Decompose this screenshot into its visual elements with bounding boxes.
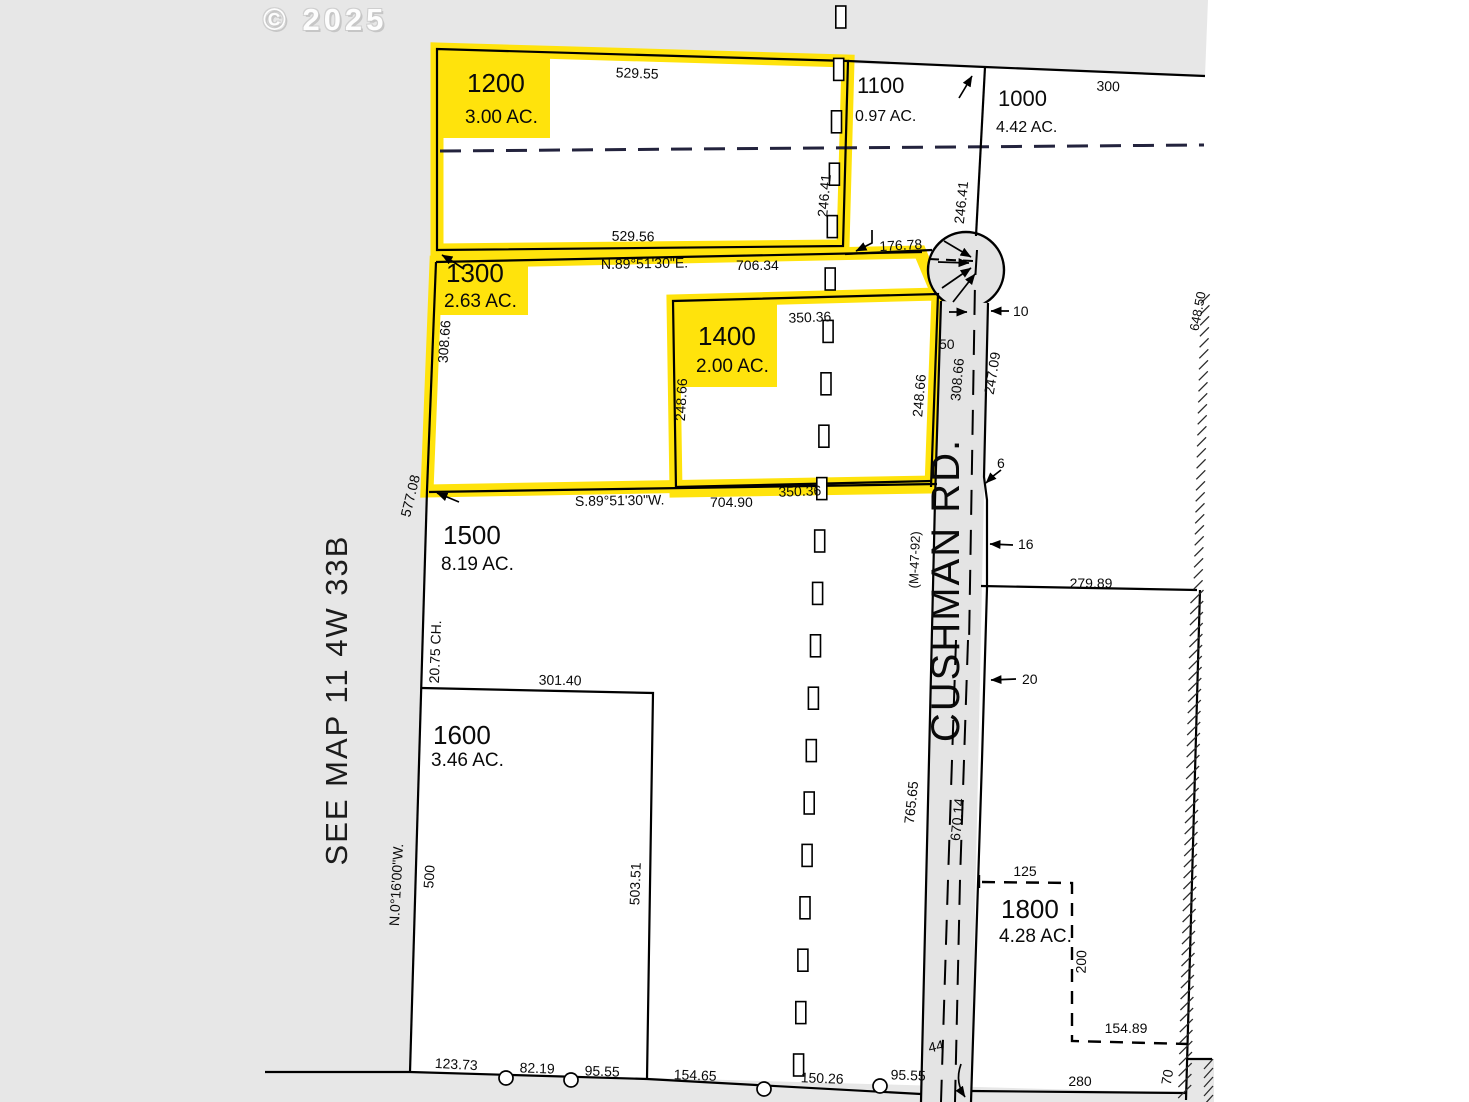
dim-arrow-6	[986, 470, 1001, 483]
survey-circle	[873, 1079, 887, 1093]
hatch-tick	[1196, 470, 1205, 479]
dim-280: 280	[1068, 1073, 1092, 1089]
hatch-tick	[1186, 755, 1199, 768]
plat-map-page: 1200 3.00 AC. 1100 0.97 AC. 1000 4.42 AC…	[0, 0, 1469, 1102]
hatch-tick	[1180, 1019, 1193, 1032]
hatch-tick	[1197, 426, 1206, 435]
dim-301-40: 301.40	[539, 672, 582, 689]
hatch-tick	[1197, 437, 1206, 446]
dim-248-66-e: 248.66	[909, 373, 929, 417]
plat-map: 1200 3.00 AC. 1100 0.97 AC. 1000 4.42 AC…	[0, 0, 1469, 1102]
lot-1200-acreage: 3.00 AC.	[465, 107, 538, 128]
hatch-tick	[1189, 645, 1202, 658]
rect-dash	[834, 58, 844, 80]
hatch-tick	[1194, 569, 1203, 578]
rect-dash	[800, 897, 810, 919]
dim-10: 10	[1013, 303, 1029, 319]
hatch-tick	[1195, 514, 1204, 523]
hatch-tick	[1195, 525, 1204, 534]
dim-350-36-s: 350.36	[778, 482, 822, 499]
bearing-north-length: 706.34	[736, 257, 779, 273]
hatch-tick	[1189, 656, 1202, 669]
map-labels: 1200 3.00 AC. 1100 0.97 AC. 1000 4.42 AC…	[319, 64, 1209, 1089]
hatch-tick	[1198, 404, 1207, 413]
lot-1200-number: 1200	[467, 68, 525, 98]
lot-1400-acreage: 2.00 AC.	[696, 356, 769, 377]
hatch-tick	[1187, 733, 1200, 746]
lot-label-1600: 1600 3.46 AC.	[431, 720, 504, 771]
hatched-east-boundary	[1178, 294, 1213, 1102]
dim-279-89: 279.89	[1070, 575, 1113, 591]
hatch-tick	[1196, 481, 1205, 490]
section-dashed-line	[440, 145, 1204, 151]
lot-label-1800: 1800 4.28 AC.	[999, 894, 1072, 947]
dim-6: 6	[997, 455, 1005, 471]
hatch-tick	[1186, 777, 1199, 790]
rect-dash	[796, 1002, 806, 1024]
rect-dash	[836, 6, 846, 28]
survey-circle	[564, 1073, 578, 1087]
hatch-tick	[1200, 338, 1209, 347]
rect-dash	[811, 635, 821, 657]
dim-529-55: 529.55	[615, 64, 659, 81]
hatch-tick	[1194, 547, 1203, 556]
dim-500: 500	[420, 864, 438, 889]
lot-1500-acreage: 8.19 AC.	[441, 554, 514, 575]
bulb-arrow-2	[938, 262, 969, 263]
dim-154-89: 154.89	[1105, 1020, 1148, 1036]
bearing-south-line: S.89°51'30"W.	[575, 491, 665, 509]
hatch-tick	[1199, 349, 1208, 358]
hatch-tick	[1188, 678, 1201, 691]
hatch-tick	[1185, 821, 1198, 834]
dim-82-19: 82.19	[519, 1059, 555, 1076]
hatch-tick	[1181, 975, 1194, 988]
dim-529-56: 529.56	[612, 228, 655, 245]
hatch-tick	[1181, 986, 1194, 999]
hatch-tick	[1197, 448, 1206, 457]
hatch-tick	[1196, 492, 1205, 501]
dim-70: 70	[1158, 1068, 1176, 1086]
hatch-tick	[1187, 722, 1200, 735]
rect-dash	[825, 268, 835, 290]
dim-308-66-w: 308.66	[435, 320, 454, 364]
dim-154-65: 154.65	[673, 1066, 717, 1083]
hatch-tick	[1189, 634, 1202, 647]
hatch-tick	[1184, 843, 1197, 856]
hatch-tick	[1195, 536, 1204, 545]
lot-1500-number: 1500	[443, 520, 501, 550]
rect-dash	[813, 582, 823, 604]
hatch-tick	[1182, 953, 1195, 966]
dim-248-66-w: 248.66	[672, 378, 690, 422]
dim-176-78: 176.78	[879, 236, 923, 254]
dim-648-50: 648.50	[1186, 290, 1208, 332]
lot-label-1000: 1000 4.42 AC.	[996, 86, 1057, 136]
section-rect-dash-line	[794, 6, 846, 1076]
hatch-tick	[1198, 393, 1207, 402]
rect-dash	[827, 216, 837, 238]
hatch-tick	[1186, 766, 1199, 779]
dim-246-41-e: 246.41	[951, 180, 971, 224]
hatch-tick	[1190, 612, 1203, 625]
dim-16: 16	[1018, 536, 1034, 552]
dim-503-51: 503.51	[626, 862, 643, 906]
dim-arrow-20	[991, 679, 1016, 680]
lot-1100-east	[976, 67, 985, 236]
hatch-tick	[1182, 942, 1195, 955]
corner-arrow-north	[959, 76, 972, 98]
hatch-tick	[1194, 580, 1203, 589]
hatch-tick	[1198, 415, 1207, 424]
hatch-tick	[1182, 920, 1195, 933]
hatch-tick	[1186, 788, 1199, 801]
lot-1600-number: 1600	[433, 720, 491, 750]
hatch-tick	[1199, 360, 1208, 369]
road-name-label: CUSHMAN RD.	[924, 438, 968, 742]
lot-1300-acreage: 2.63 AC.	[444, 291, 517, 312]
dim-50: 50	[939, 336, 955, 352]
hatch-tick	[1183, 898, 1196, 911]
dim-123-73: 123.73	[434, 1055, 478, 1073]
lot-1000-acreage: 4.42 AC.	[996, 119, 1057, 136]
dim-arrow-16	[990, 544, 1013, 545]
rect-dash	[798, 949, 808, 971]
hatch-tick	[1199, 382, 1208, 391]
rect-dash	[821, 373, 831, 395]
hatch-tick	[1190, 601, 1203, 614]
dim-246-41-w: 246.41	[814, 173, 834, 217]
hatch-tick	[1196, 503, 1205, 512]
dim-95-55-a: 95.55	[584, 1062, 620, 1079]
lot-1300-number: 1300	[446, 258, 504, 288]
dim-125: 125	[1013, 863, 1037, 879]
lot-label-1100: 1100 0.97 AC.	[855, 73, 916, 125]
hatch-tick	[1187, 744, 1200, 757]
hatch-tick	[1184, 865, 1197, 878]
hatch-tick	[1180, 1030, 1193, 1043]
hatch-tick	[1188, 700, 1201, 713]
hatch-tick	[1185, 799, 1198, 812]
dim-95-55-b: 95.55	[890, 1066, 926, 1083]
hatch-tick	[1183, 887, 1196, 900]
dim-150-26: 150.26	[800, 1069, 844, 1086]
see-map-label: SEE MAP 11 4W 33B	[319, 535, 354, 866]
hatch-tick	[1188, 689, 1201, 702]
rect-dash	[815, 530, 825, 552]
hatch-tick	[1185, 832, 1198, 845]
lot-label-1500: 1500 8.19 AC.	[441, 520, 514, 575]
hatch-tick	[1188, 711, 1201, 724]
hatch-tick	[1183, 909, 1196, 922]
hatch-tick	[1182, 931, 1195, 944]
rect-dash	[806, 740, 816, 762]
lot-1100-acreage: 0.97 AC.	[855, 108, 916, 125]
lot-1400-number: 1400	[698, 321, 756, 351]
lot-1800-acreage: 4.28 AC.	[999, 926, 1072, 947]
hatch-tick	[1199, 371, 1208, 380]
rect-dash	[804, 792, 814, 814]
bearing-north-line: N.89°51'30"E.	[601, 254, 688, 272]
hatch-tick	[1183, 876, 1196, 889]
copyright-watermark: © 2025	[263, 2, 387, 38]
rect-dash	[819, 425, 829, 447]
hatch-tick	[1190, 623, 1203, 636]
dim-765-65: 765.65	[901, 780, 921, 824]
dim-300: 300	[1096, 78, 1120, 95]
rect-dash	[802, 844, 812, 866]
hatch-tick	[1185, 810, 1198, 823]
hatch-tick	[1181, 964, 1194, 977]
dim-350-36-n: 350.36	[788, 308, 832, 325]
hatch-tick	[1197, 459, 1206, 468]
culdesac-bulb	[928, 232, 1004, 308]
lot-1000-number: 1000	[998, 86, 1047, 111]
hatch-tick	[1194, 558, 1203, 567]
hatch-tick	[1184, 854, 1197, 867]
hatch-tick	[1191, 590, 1204, 603]
lot-1800-number: 1800	[1001, 894, 1059, 924]
hatch-tick	[1189, 667, 1202, 680]
bearing-south-length: 704.90	[710, 494, 753, 510]
survey-circle	[757, 1082, 771, 1096]
dim-20: 20	[1022, 671, 1038, 687]
rect-dash	[808, 687, 818, 709]
dim-200: 200	[1073, 950, 1090, 974]
survey-circle	[499, 1071, 513, 1085]
dim-20-75-ch: 20.75 CH.	[426, 620, 444, 684]
road-survey-ref: (M-47-92)	[906, 531, 923, 589]
lot-1100-number: 1100	[857, 73, 904, 98]
rect-dash	[832, 111, 842, 133]
hatch-tick	[1180, 997, 1193, 1010]
lot-1600-acreage: 3.46 AC.	[431, 750, 504, 771]
hatch-tick	[1180, 1008, 1193, 1021]
